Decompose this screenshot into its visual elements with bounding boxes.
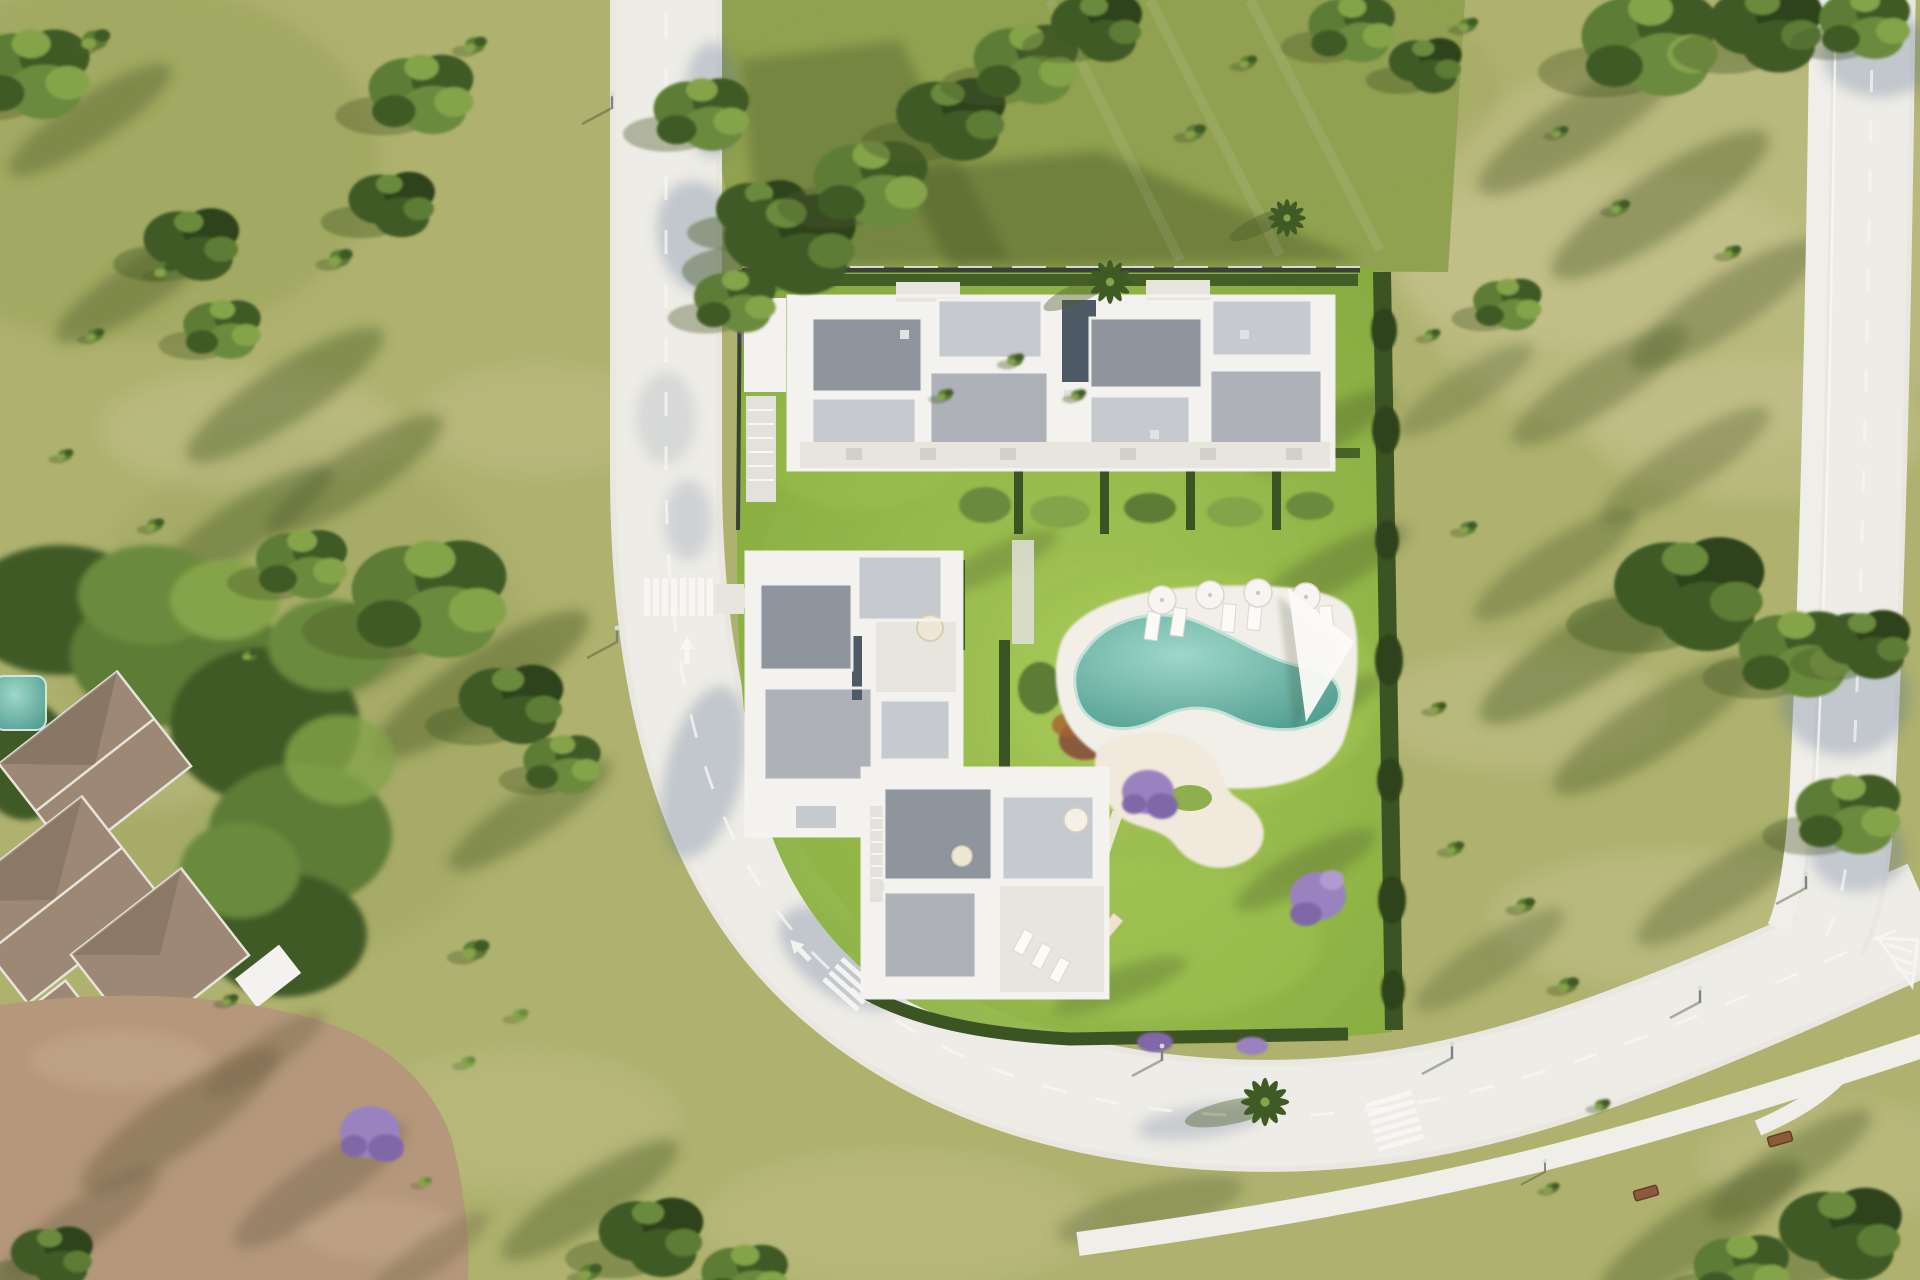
aerial-render: [0, 0, 1920, 1280]
roof-parasol: [1064, 808, 1088, 832]
villa-small-pool: [0, 676, 46, 730]
building-a: [744, 280, 1334, 502]
building-c: [862, 768, 1108, 998]
aerial-scene: [0, 0, 1920, 1280]
